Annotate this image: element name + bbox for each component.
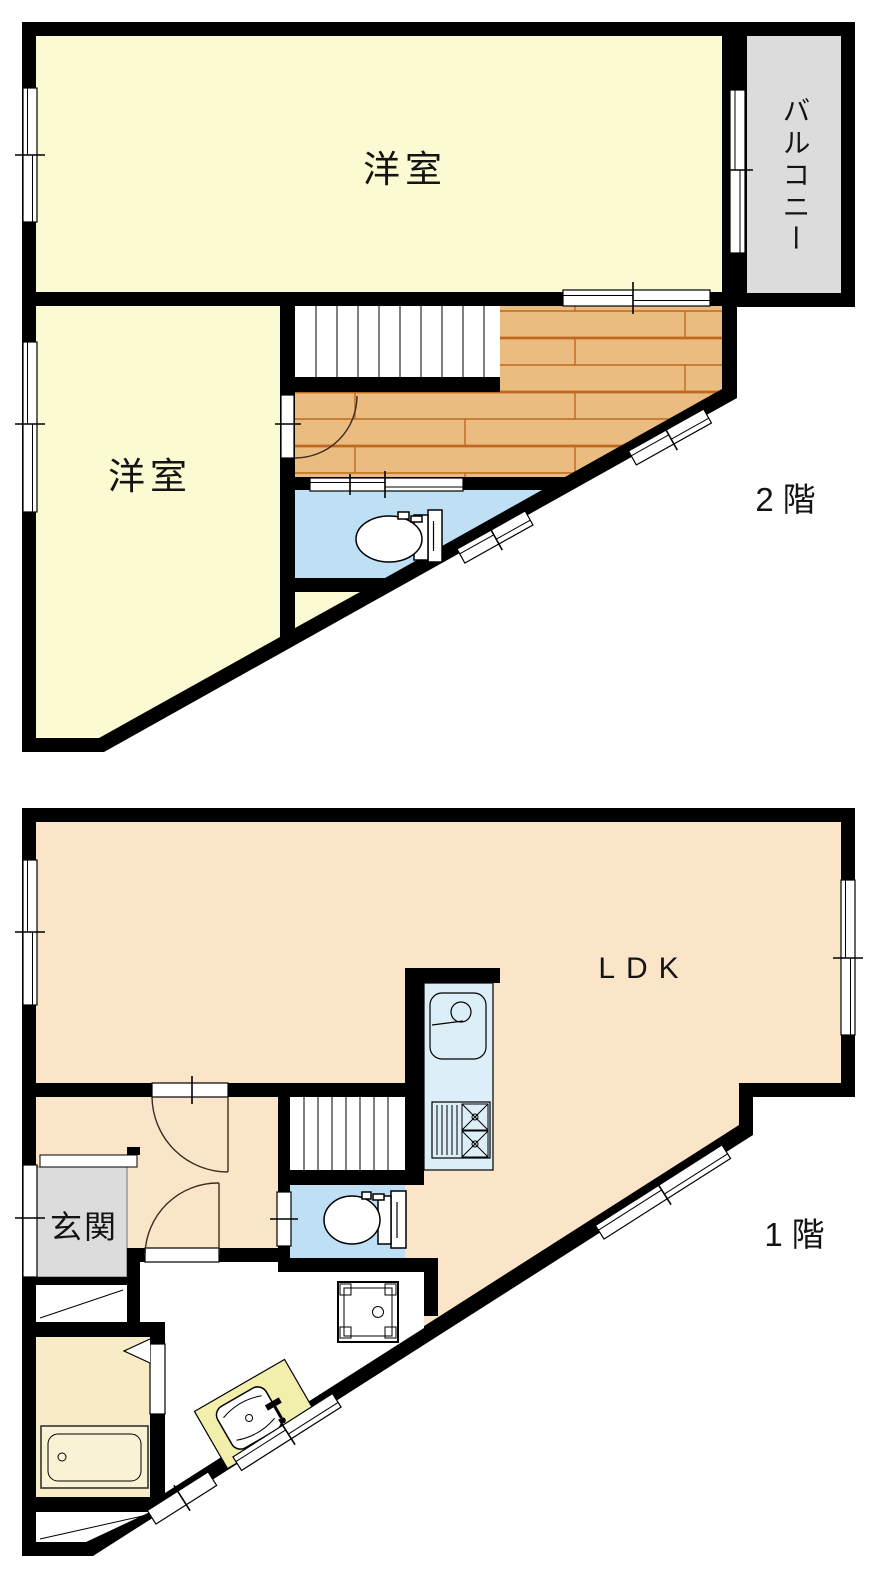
- bathtub: [41, 1426, 148, 1488]
- floorplan-1f: LDK 玄関 1階: [15, 808, 863, 1556]
- kitchen-counter: [424, 983, 493, 1170]
- washing-machine-pan: [338, 1282, 398, 1342]
- toilet-fixture-1f: [324, 1191, 406, 1248]
- label-western-room-top: 洋室: [363, 149, 447, 190]
- label-balcony: バルコニー: [780, 96, 811, 256]
- entrance-step: [40, 1155, 137, 1167]
- staircase-2f: [295, 306, 500, 377]
- label-floor-1f: 1階: [764, 1216, 833, 1253]
- floorplan-drawing: 洋室 洋室 バルコニー 2階: [0, 0, 880, 1585]
- floorplan-page: 洋室 洋室 バルコニー 2階: [0, 0, 880, 1585]
- label-ldk: LDK: [598, 952, 689, 985]
- floorplan-2f: 洋室 洋室 バルコニー 2階: [15, 22, 855, 752]
- label-western-room-left: 洋室: [108, 456, 192, 497]
- bathroom-door-opening: [150, 1344, 165, 1414]
- label-floor-2f: 2階: [755, 481, 824, 518]
- label-entrance: 玄関: [50, 1209, 118, 1245]
